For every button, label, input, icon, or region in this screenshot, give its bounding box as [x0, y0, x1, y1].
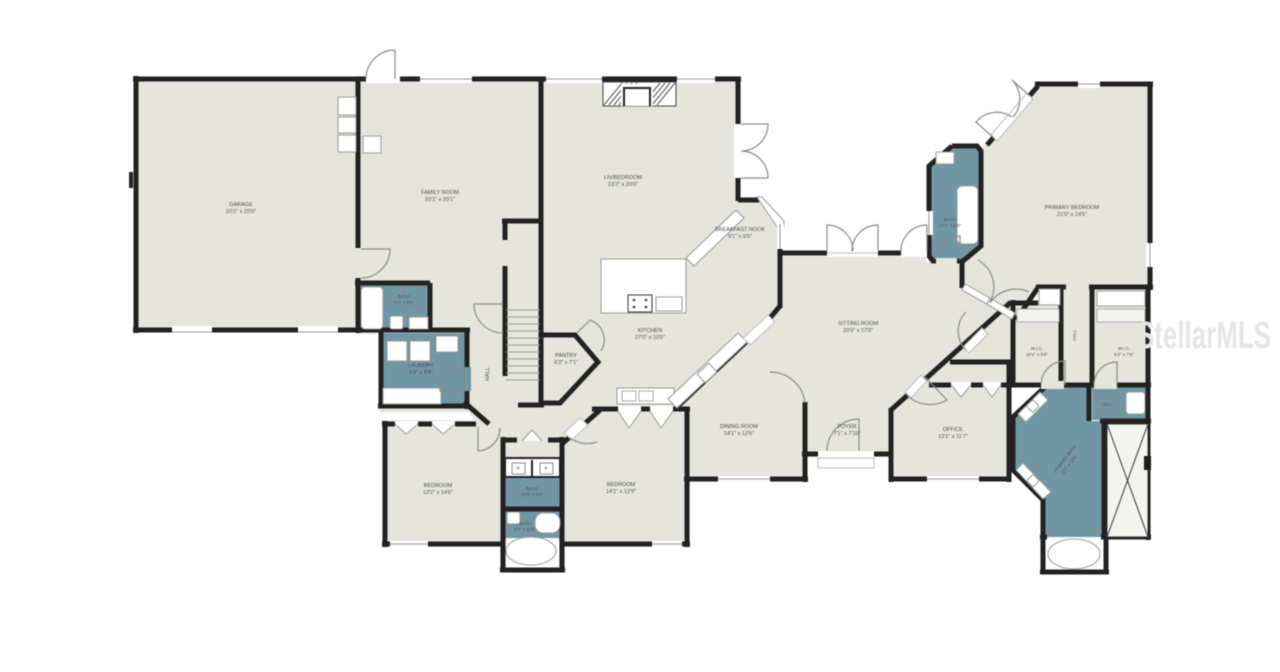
svg-text:6'7" x 11'5": 6'7" x 11'5": [514, 527, 536, 532]
svg-text:FOYER: FOYER: [838, 424, 857, 430]
svg-text:PANTRY: PANTRY: [555, 353, 577, 359]
svg-text:GARAGE: GARAGE: [229, 202, 253, 208]
svg-text:10'6" x 6'0": 10'6" x 6'0": [521, 492, 544, 497]
svg-text:KITCHEN: KITCHEN: [638, 328, 662, 334]
svg-text:13'1" x 11'7": 13'1" x 11'7": [938, 434, 968, 440]
svg-text:27'0" x 10'0": 27'0" x 10'0": [635, 335, 665, 341]
svg-text:13'1" x 6'0": 13'1" x 6'0": [939, 223, 962, 228]
svg-text:PRIMARY BEDROOM: PRIMARY BEDROOM: [1045, 205, 1100, 211]
svg-text:BATH: BATH: [944, 217, 956, 222]
svg-text:HALL: HALL: [485, 367, 491, 381]
svg-text:BATH: BATH: [526, 486, 538, 491]
svg-text:BREAKFAST NOOK: BREAKFAST NOOK: [715, 227, 765, 233]
svg-text:21'0" x 14'5": 21'0" x 14'5": [1057, 212, 1087, 218]
svg-text:9'1" x 9'0": 9'1" x 9'0": [728, 234, 752, 240]
svg-text:HALL: HALL: [1072, 329, 1077, 341]
svg-text:5'8" x 8'8": 5'8" x 8'8": [409, 370, 433, 376]
svg-text:10'1" x 5'6": 10'1" x 5'6": [1026, 352, 1049, 357]
svg-text:23'2" x 20'0": 23'2" x 20'0": [608, 182, 638, 188]
svg-text:LIV/BEDROOM: LIV/BEDROOM: [604, 175, 643, 181]
svg-text:6'3" x 7'1": 6'3" x 7'1": [554, 360, 578, 366]
svg-text:20'0" x 17'0": 20'0" x 17'0": [843, 328, 873, 334]
svg-text:LAUNDRY: LAUNDRY: [408, 363, 435, 369]
svg-text:DINING ROOM: DINING ROOM: [720, 424, 758, 430]
svg-text:W.I.C.: W.I.C.: [1118, 346, 1130, 351]
svg-text:6'2" x 7'9": 6'2" x 7'9": [1114, 352, 1134, 357]
svg-text:FAMILY ROOM: FAMILY ROOM: [421, 190, 459, 196]
svg-text:W.C.: W.C.: [1103, 402, 1113, 407]
svg-text:7'1" x 7'10": 7'1" x 7'10": [833, 431, 860, 437]
svg-text:SITTING ROOM: SITTING ROOM: [838, 321, 879, 327]
svg-text:BEDROOM: BEDROOM: [607, 482, 636, 488]
svg-text:8'1" x 5'0": 8'1" x 5'0": [394, 300, 414, 305]
svg-text:BATH: BATH: [519, 521, 531, 526]
svg-text:20'2" x 20'0": 20'2" x 20'0": [226, 209, 256, 215]
svg-text:13'2" x 14'6": 13'2" x 14'6": [423, 490, 453, 496]
svg-text:BEDROOM: BEDROOM: [424, 483, 453, 489]
svg-text:14'1" x 12'6": 14'1" x 12'6": [724, 431, 754, 437]
svg-text:OFFICE: OFFICE: [943, 427, 963, 433]
svg-text:20'1" x 20'1": 20'1" x 20'1": [425, 197, 455, 203]
svg-text:14'1" x 12'9": 14'1" x 12'9": [606, 489, 636, 495]
svg-text:StellarMLS: StellarMLS: [1137, 315, 1271, 357]
svg-text:BATH: BATH: [398, 294, 410, 299]
svg-text:W.I.C.: W.I.C.: [1031, 346, 1043, 351]
